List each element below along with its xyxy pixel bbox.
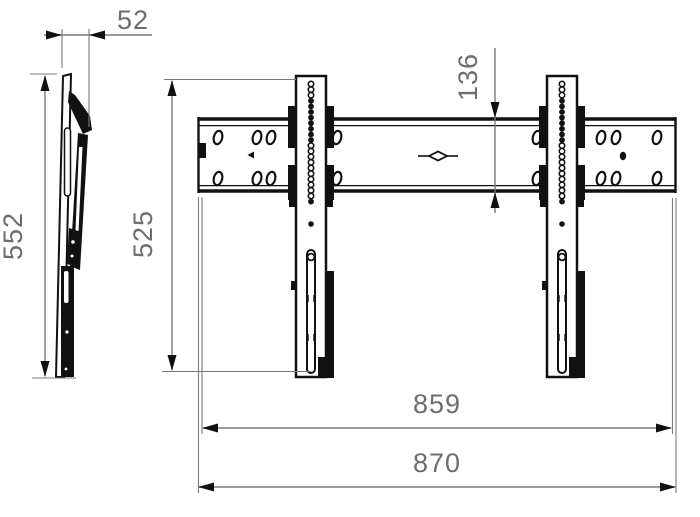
dimension-label-depth: 52 xyxy=(117,5,149,35)
dimension-label-overall-width: 870 xyxy=(413,448,461,478)
arrowhead xyxy=(198,483,214,492)
arrowhead xyxy=(46,31,62,40)
dimension-label-rail-height: 136 xyxy=(453,53,483,101)
dimension-label-inner-width: 859 xyxy=(413,389,461,419)
drawing-canvas: 52 552 xyxy=(0,0,700,517)
arrowhead xyxy=(656,424,672,433)
arrowhead xyxy=(41,361,50,377)
arrowhead xyxy=(491,102,500,118)
bracket-right xyxy=(539,76,585,378)
arrowhead xyxy=(202,424,218,433)
bracket-left xyxy=(288,76,334,378)
dimension-870: 870 xyxy=(198,197,676,493)
rail-end-lock xyxy=(199,143,206,158)
side-view-profile xyxy=(56,74,92,377)
side-view: 52 552 xyxy=(0,5,152,378)
arrowhead xyxy=(168,80,177,96)
dimension-label-height: 552 xyxy=(0,212,28,260)
front-view: 525 136 859 870 xyxy=(128,48,676,493)
arrowhead xyxy=(168,355,177,371)
dimension-859: 859 xyxy=(202,197,673,434)
dimension-52: 52 xyxy=(44,5,152,127)
dimension-label-bracket-height: 525 xyxy=(128,210,158,258)
rail xyxy=(198,117,676,193)
arrowhead xyxy=(89,31,105,40)
rail-pin-right xyxy=(620,152,626,160)
arrowhead xyxy=(660,483,676,492)
arrowhead xyxy=(41,75,50,91)
mount-dimension-drawing: 52 552 xyxy=(0,0,700,517)
arrowhead xyxy=(491,192,500,208)
